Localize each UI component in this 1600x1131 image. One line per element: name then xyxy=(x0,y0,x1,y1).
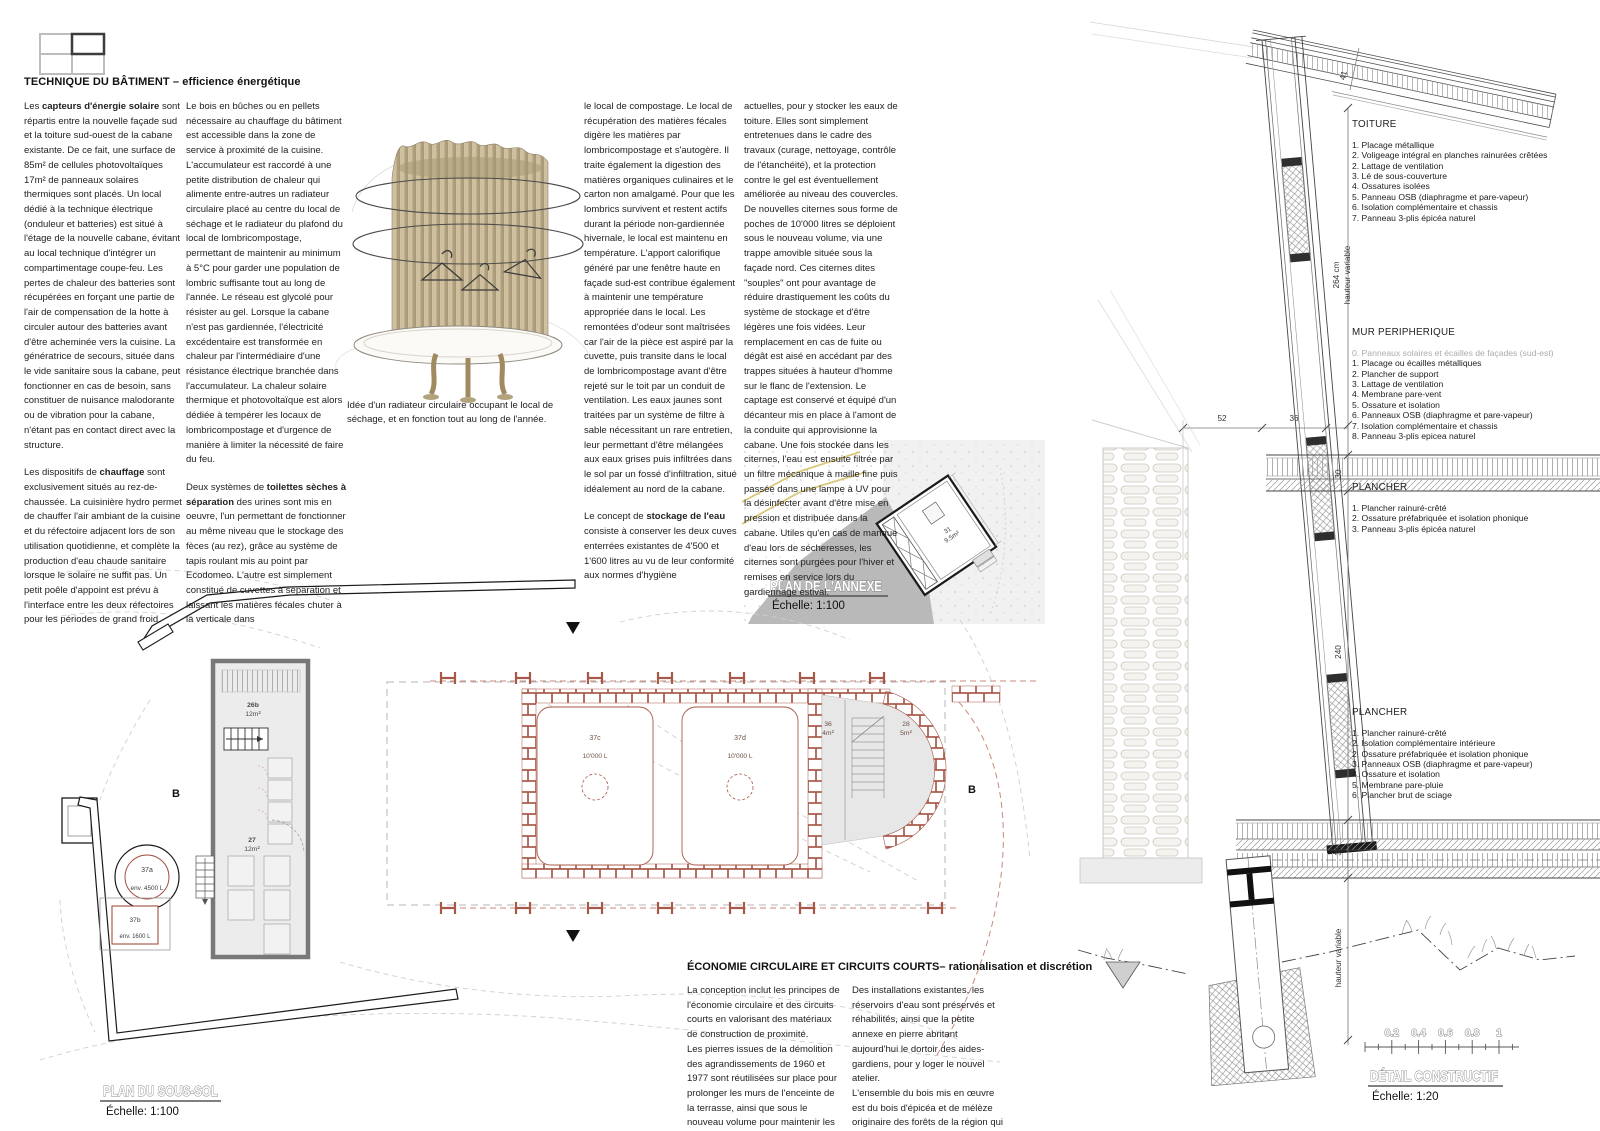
legend-item: 3. Lé de sous-couverture xyxy=(1352,171,1547,181)
tank-37a-vol: env. 4500 L xyxy=(131,885,164,892)
paragraph: Le bois en bûches ou en pellets nécessai… xyxy=(186,100,346,468)
economie-col-2: Des installations existantes, les réserv… xyxy=(852,984,1005,1131)
legend-plancher1-heading: PLANCHER xyxy=(1352,482,1528,494)
legend-toiture: TOITURE 1. Placage métallique 2. Voligea… xyxy=(1352,119,1547,223)
paragraph: Le concept de stockage de l'eau consiste… xyxy=(584,510,739,584)
legend-item: 5. Panneau OSB (diaphragme et pare-vapeu… xyxy=(1352,192,1547,202)
legend-item: 2. Isolation complémentaire intérieure xyxy=(1352,738,1533,748)
section-label-left: B xyxy=(172,788,180,800)
room-28-id: 28 xyxy=(902,721,910,728)
scalebar-0.2: 0.2 xyxy=(1384,1027,1399,1039)
legend-toiture-heading: TOITURE xyxy=(1352,119,1547,131)
legend-plancher-1: PLANCHER 1. Plancher rainuré-crêté 2. Os… xyxy=(1352,482,1528,534)
legend-item: 1. Placage métallique xyxy=(1352,140,1547,150)
dim-30: 30 xyxy=(1334,469,1343,479)
dim-240: 240 xyxy=(1334,645,1343,659)
scalebar-1: 1 xyxy=(1496,1027,1502,1039)
dim-hauteur-variable: hauteur variable xyxy=(1334,928,1343,987)
legend-mur-heading: MUR PERIPHERIQUE xyxy=(1352,327,1554,339)
legend-item: 4. Ossature et isolation xyxy=(1352,769,1533,779)
technique-col-2: Le bois en bûches ou en pellets nécessai… xyxy=(186,100,346,641)
plan-sous-sol-title: PLAN DU SOUS-SOL xyxy=(103,1083,218,1100)
paragraph: Les capteurs d'énergie solaire sont répa… xyxy=(24,100,182,453)
legend-item: 1. Placage ou écailles métalliques xyxy=(1352,358,1554,368)
legend-item: 2. Voligeage intégral en planches rainur… xyxy=(1352,150,1547,160)
plan-sous-sol-scale: Échelle: 1:100 xyxy=(106,1105,179,1118)
scalebar-0.6: 0.6 xyxy=(1438,1027,1453,1039)
room-27-area: 12m² xyxy=(244,846,260,853)
room-36-area: 4m² xyxy=(822,730,834,737)
legend-item: 7. Isolation complémentaire et chassis xyxy=(1352,421,1554,431)
legend-item: 7. Panneau 3-plis épicéa naturel xyxy=(1352,213,1547,223)
tank-37a-id: 37a xyxy=(141,867,153,874)
detail-scale: Échelle: 1:20 xyxy=(1372,1090,1439,1103)
tank-37b-id: 37b xyxy=(129,917,140,924)
legend-item: 2. Ossature préfabriquée et isolation ph… xyxy=(1352,513,1528,523)
dim-52: 52 xyxy=(1217,414,1227,423)
dim-264cm: 264 cm xyxy=(1332,261,1341,288)
paragraph: actuelles, pour y stocker les eaux de to… xyxy=(744,100,899,600)
legend-item: 1. Plancher rainuré-crêté xyxy=(1352,503,1528,513)
legend-item: 5. Ossature et isolation xyxy=(1352,400,1554,410)
tank-37d-id: 37d xyxy=(734,735,746,742)
room-26b-id: 26b xyxy=(247,702,259,709)
technique-col-4: actuelles, pour y stocker les eaux de to… xyxy=(744,100,899,613)
room-36-id: 36 xyxy=(824,721,832,728)
legend-item: 3. Panneaux OSB (diaphragme et pare-vape… xyxy=(1352,759,1533,769)
tank-37b-vol: env. 1600 L xyxy=(120,934,152,940)
economie-title: ÉCONOMIE CIRCULAIRE ET CIRCUITS COURTS– … xyxy=(687,961,1092,973)
scalebar-0.8: 0.8 xyxy=(1465,1027,1480,1039)
technique-title: TECHNIQUE DU BÂTIMENT – efficience énerg… xyxy=(24,76,301,88)
room-26b-area: 12m² xyxy=(245,711,261,718)
detail-scale-bar: 0.2 0.4 0.6 0.8 1 xyxy=(1365,1027,1519,1054)
grass-strokes xyxy=(1104,916,1536,960)
legend-item: 3. Lattage de ventilation xyxy=(1352,379,1554,389)
legend-item: 1. Plancher rainuré-crêté xyxy=(1352,728,1533,738)
section-label-right: B xyxy=(968,784,976,796)
presentation-sheet: 31 9.5m² xyxy=(0,0,1600,1131)
legend-plancher2-heading: PLANCHER xyxy=(1352,707,1533,719)
legend-item: 6. Plancher brut de sciage xyxy=(1352,790,1533,800)
legend-item: 6. Isolation complémentaire et chassis xyxy=(1352,202,1547,212)
legend-mur: MUR PERIPHERIQUE 0. Panneaux solaires et… xyxy=(1352,327,1554,441)
economie-col-1: La conception inclut les principes de l'… xyxy=(687,984,840,1131)
section-arrow-bottom xyxy=(566,930,580,942)
legend-item: 2. Ossature préfabriquée et isolation ph… xyxy=(1352,749,1533,759)
scalebar-0.4: 0.4 xyxy=(1411,1027,1426,1039)
legend-item: 4. Ossatures isolées xyxy=(1352,181,1547,191)
section-arrow-top xyxy=(566,622,580,634)
technique-col-1: Les capteurs d'énergie solaire sont répa… xyxy=(24,100,182,641)
legend-item: 4. Membrane pare-vent xyxy=(1352,389,1554,399)
room-28-area: 5m² xyxy=(900,730,912,737)
dim-36-wall: 36 xyxy=(1289,414,1299,423)
legend-item: 2. Lattage de ventilation xyxy=(1352,161,1547,171)
tank-37c-id: 37c xyxy=(589,735,601,742)
paragraph: Les dispositifs de chauffage sont exclus… xyxy=(24,466,182,628)
dim-36-floor: 36 xyxy=(1334,846,1343,856)
paragraph: le local de compostage. Le local de récu… xyxy=(584,100,739,497)
radiator-illustration xyxy=(336,140,592,403)
technique-col-3: le local de compostage. Le local de récu… xyxy=(584,100,739,597)
legend-item: 3. Panneau 3-plis épicéa naturel xyxy=(1352,524,1528,534)
detail-title: DÉTAIL CONSTRUCTIF xyxy=(1370,1068,1498,1085)
paragraph: Deux systèmes de toilettes sèches à sépa… xyxy=(186,481,346,628)
tank-37d-vol: 10'000 L xyxy=(727,753,752,760)
legend-item: 2. Plancher de support xyxy=(1352,369,1554,379)
legend-item: 5. Membrane pare-pluie xyxy=(1352,780,1533,790)
legend-plancher-2: PLANCHER 1. Plancher rainuré-crêté 2. Is… xyxy=(1352,707,1533,801)
legend-item: 8. Panneau 3-plis epicea naturel xyxy=(1352,431,1554,441)
legend-item-muted: 0. Panneaux solaires et écailles de faça… xyxy=(1352,348,1554,358)
radiator-caption: Idée d'un radiateur circulaire occupant … xyxy=(347,399,581,428)
legend-item: 6. Panneaux OSB (diaphragme et pare-vape… xyxy=(1352,410,1554,420)
room-27-id: 27 xyxy=(248,837,256,844)
dim-264cm-suffix: hauteur variable xyxy=(1343,245,1352,304)
tank-37c-vol: 10'000 L xyxy=(582,753,607,760)
